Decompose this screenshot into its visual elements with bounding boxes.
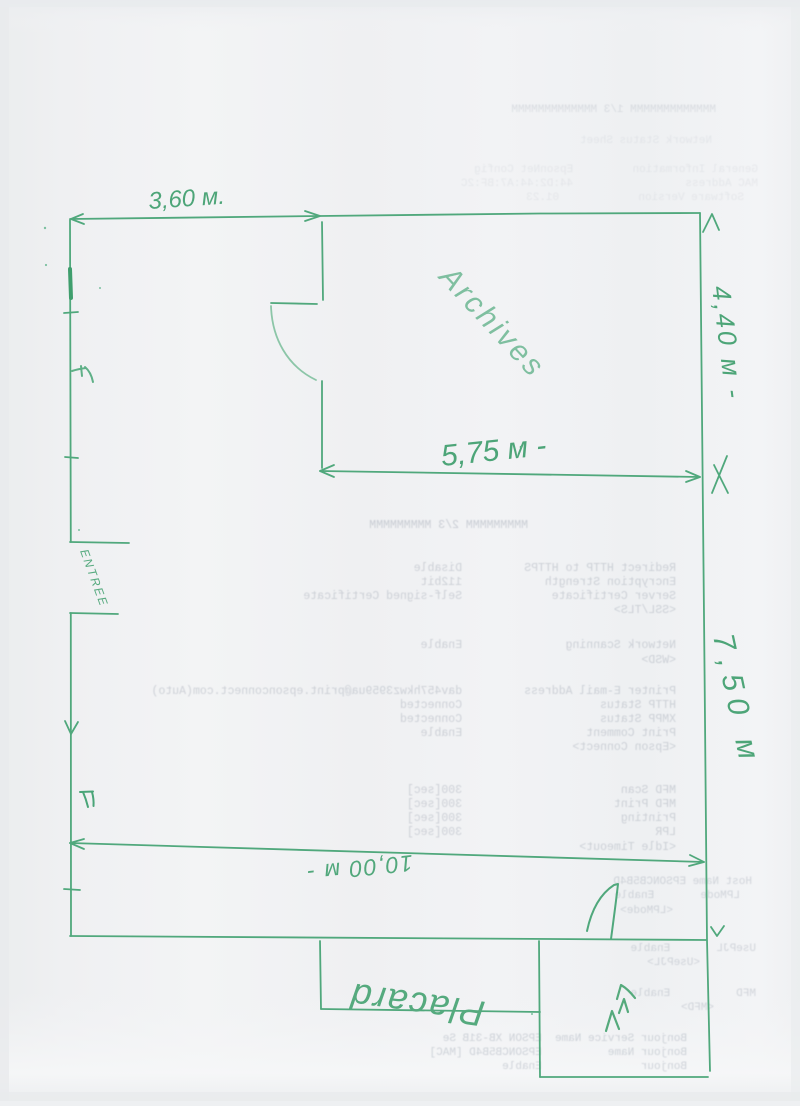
svg-text:<WSD>: <WSD> bbox=[641, 654, 676, 667]
svg-text:Bonjour Enable: Bonjour Enable bbox=[502, 1061, 687, 1073]
svg-text:Software Version 01: Software Version 01.23 bbox=[526, 192, 744, 204]
svg-text:Host Name EPSONCB5B4D: Host Name EPSONCB5B4D bbox=[613, 876, 752, 888]
svg-text:3,60 м.: 3,60 м. bbox=[148, 183, 226, 215]
svg-text:Network Status Sheet: Network Status Sheet bbox=[580, 135, 712, 147]
svg-text:Bonjour Name EPSONCB5: Bonjour Name EPSONCB5B4D [MAC] bbox=[430, 1047, 687, 1059]
svg-text:<UsePJL>: <UsePJL> bbox=[647, 957, 700, 969]
svg-text:XMPP Status: XMPP Status Connected bbox=[400, 713, 676, 726]
svg-text:HTTP Status: HTTP Status Connected bbox=[400, 699, 676, 712]
svg-text:<Idle Timeout>: <Idle Timeout> bbox=[579, 841, 676, 854]
svg-text:<LPMode>: <LPMode> bbox=[620, 905, 673, 917]
svg-text:MAC Address 44: MAC Address 44:D2:44:A7:BF:2C bbox=[461, 178, 758, 190]
svg-text:Server Certificate: Server Certificate Self-signed Certifica… bbox=[303, 590, 676, 603]
svg-text:Printer E-mail Address: Printer E-mail Address dav457hkwz3959ua@… bbox=[152, 685, 677, 698]
svg-text:Print Comment: Print Comment Enable bbox=[421, 727, 676, 740]
svg-text:LPR: LPR 300[sec] bbox=[407, 826, 676, 839]
svg-text:LPMode Enable: LPMode Enable bbox=[615, 890, 740, 902]
svg-text:Encryption Strength: Encryption Strength 112bit bbox=[421, 576, 676, 589]
svg-text:MMMMMMMMM 2/3 MMMMMMMMM: MMMMMMMMM 2/3 MMMMMMMMM bbox=[369, 519, 528, 532]
svg-text:Network Scanning: Network Scanning Enable bbox=[421, 639, 676, 652]
svg-text:MFD Scan: MFD Scan 300[sec] bbox=[407, 784, 676, 797]
svg-text:<SSL/TLS>: <SSL/TLS> bbox=[614, 604, 676, 617]
svg-text:<Epson Connect>: <Epson Connect> bbox=[572, 741, 676, 754]
svg-text:MMMMMMMMMMMMM 1/3 MMMMMMMMMMMM: MMMMMMMMMMMMM 1/3 MMMMMMMMMMMMM bbox=[511, 104, 716, 116]
svg-text:Printing: Printing 300[sec] bbox=[407, 812, 676, 825]
svg-text:Redirect HTTP to HTTPS: Redirect HTTP to HTTPS Disable bbox=[414, 562, 676, 575]
svg-text:UsePJL Enable: UsePJL Enable bbox=[631, 943, 756, 955]
svg-text:MFD Print: MFD Print 300[sec] bbox=[407, 798, 676, 811]
svg-text:MFD Enable: MFD Enable bbox=[631, 988, 756, 1000]
svg-text:General Information Ep: General Information EpsonNet Config bbox=[474, 164, 758, 176]
